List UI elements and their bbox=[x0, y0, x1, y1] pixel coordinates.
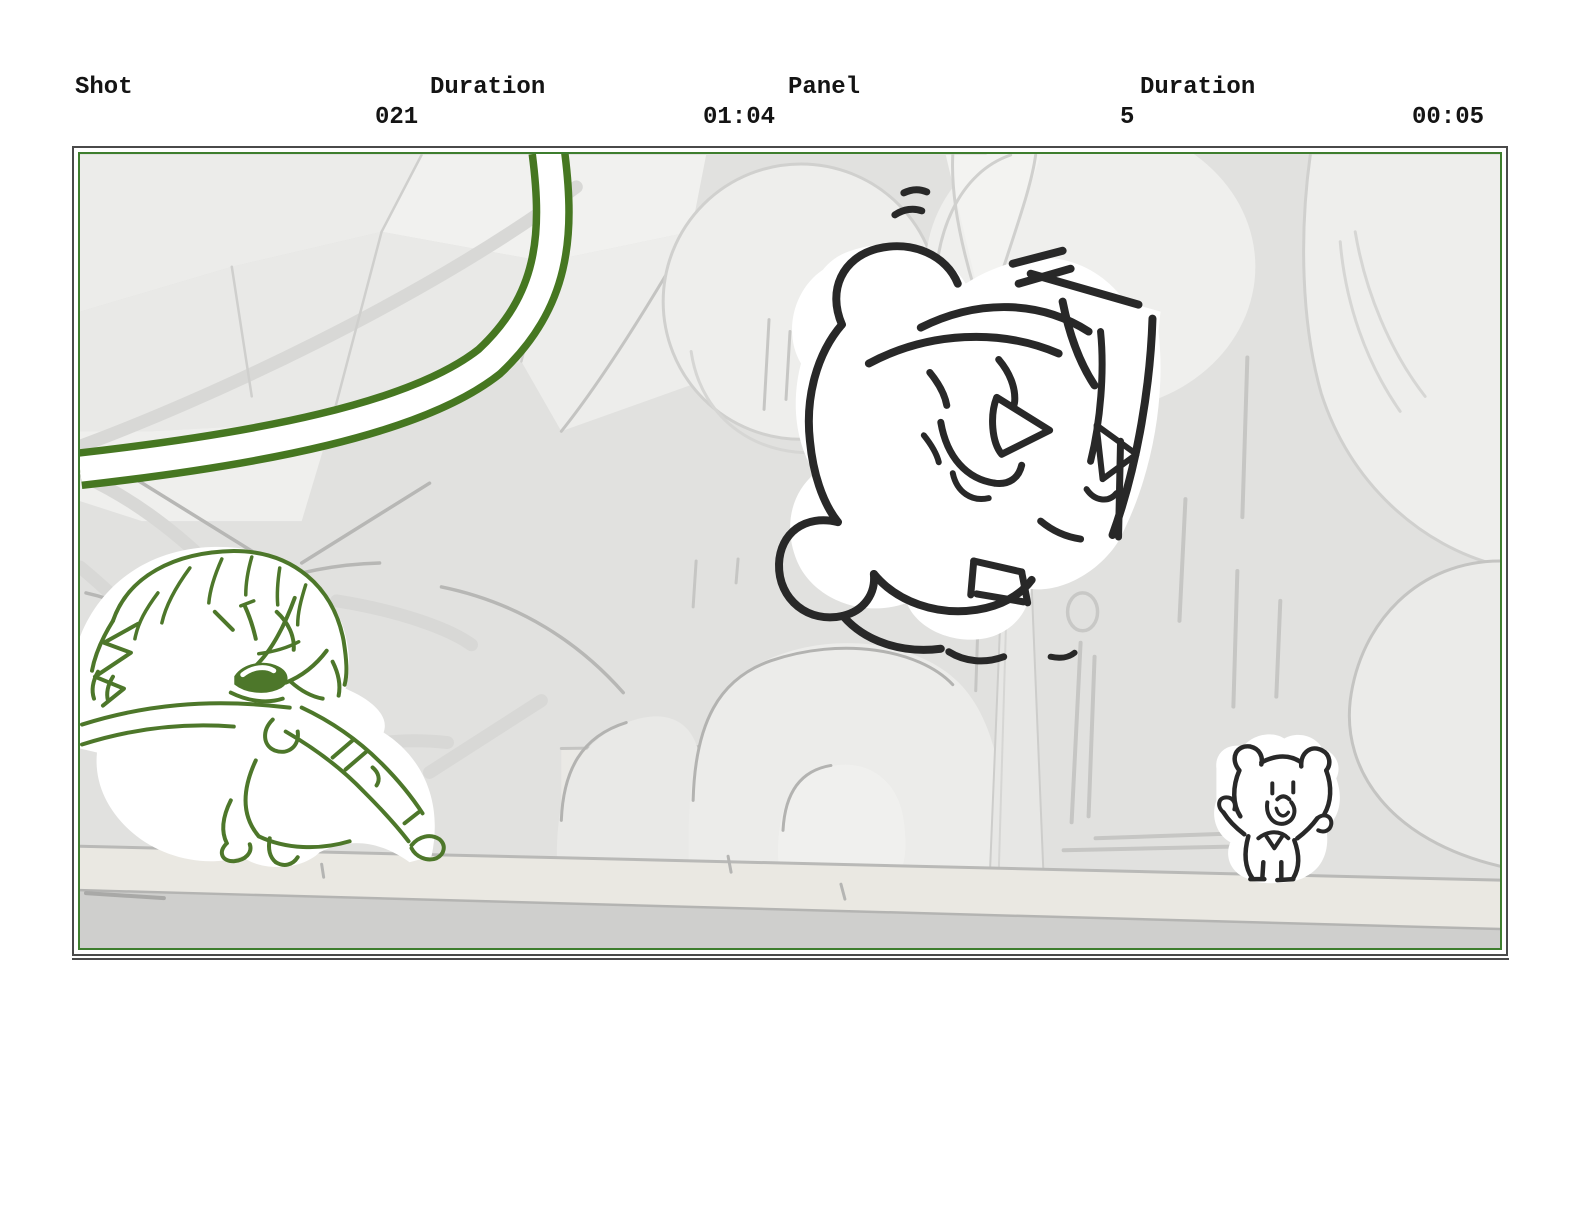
panel-duration-value: 00:05 bbox=[1412, 106, 1484, 130]
camera-frame-border bbox=[78, 152, 1502, 950]
shot-value: 021 bbox=[375, 106, 418, 130]
panel-duration-label: Duration bbox=[1140, 76, 1255, 100]
shot-duration-value: 01:04 bbox=[703, 106, 775, 130]
panel-frame bbox=[72, 146, 1508, 956]
shot-label: Shot bbox=[75, 76, 133, 100]
storyboard-drawing bbox=[80, 154, 1500, 948]
footer-divider-line bbox=[72, 958, 1509, 960]
panel-value: 5 bbox=[1120, 106, 1134, 130]
shot-duration-label: Duration bbox=[430, 76, 545, 100]
character-bear-small bbox=[1214, 734, 1340, 883]
panel-label: Panel bbox=[788, 76, 860, 100]
